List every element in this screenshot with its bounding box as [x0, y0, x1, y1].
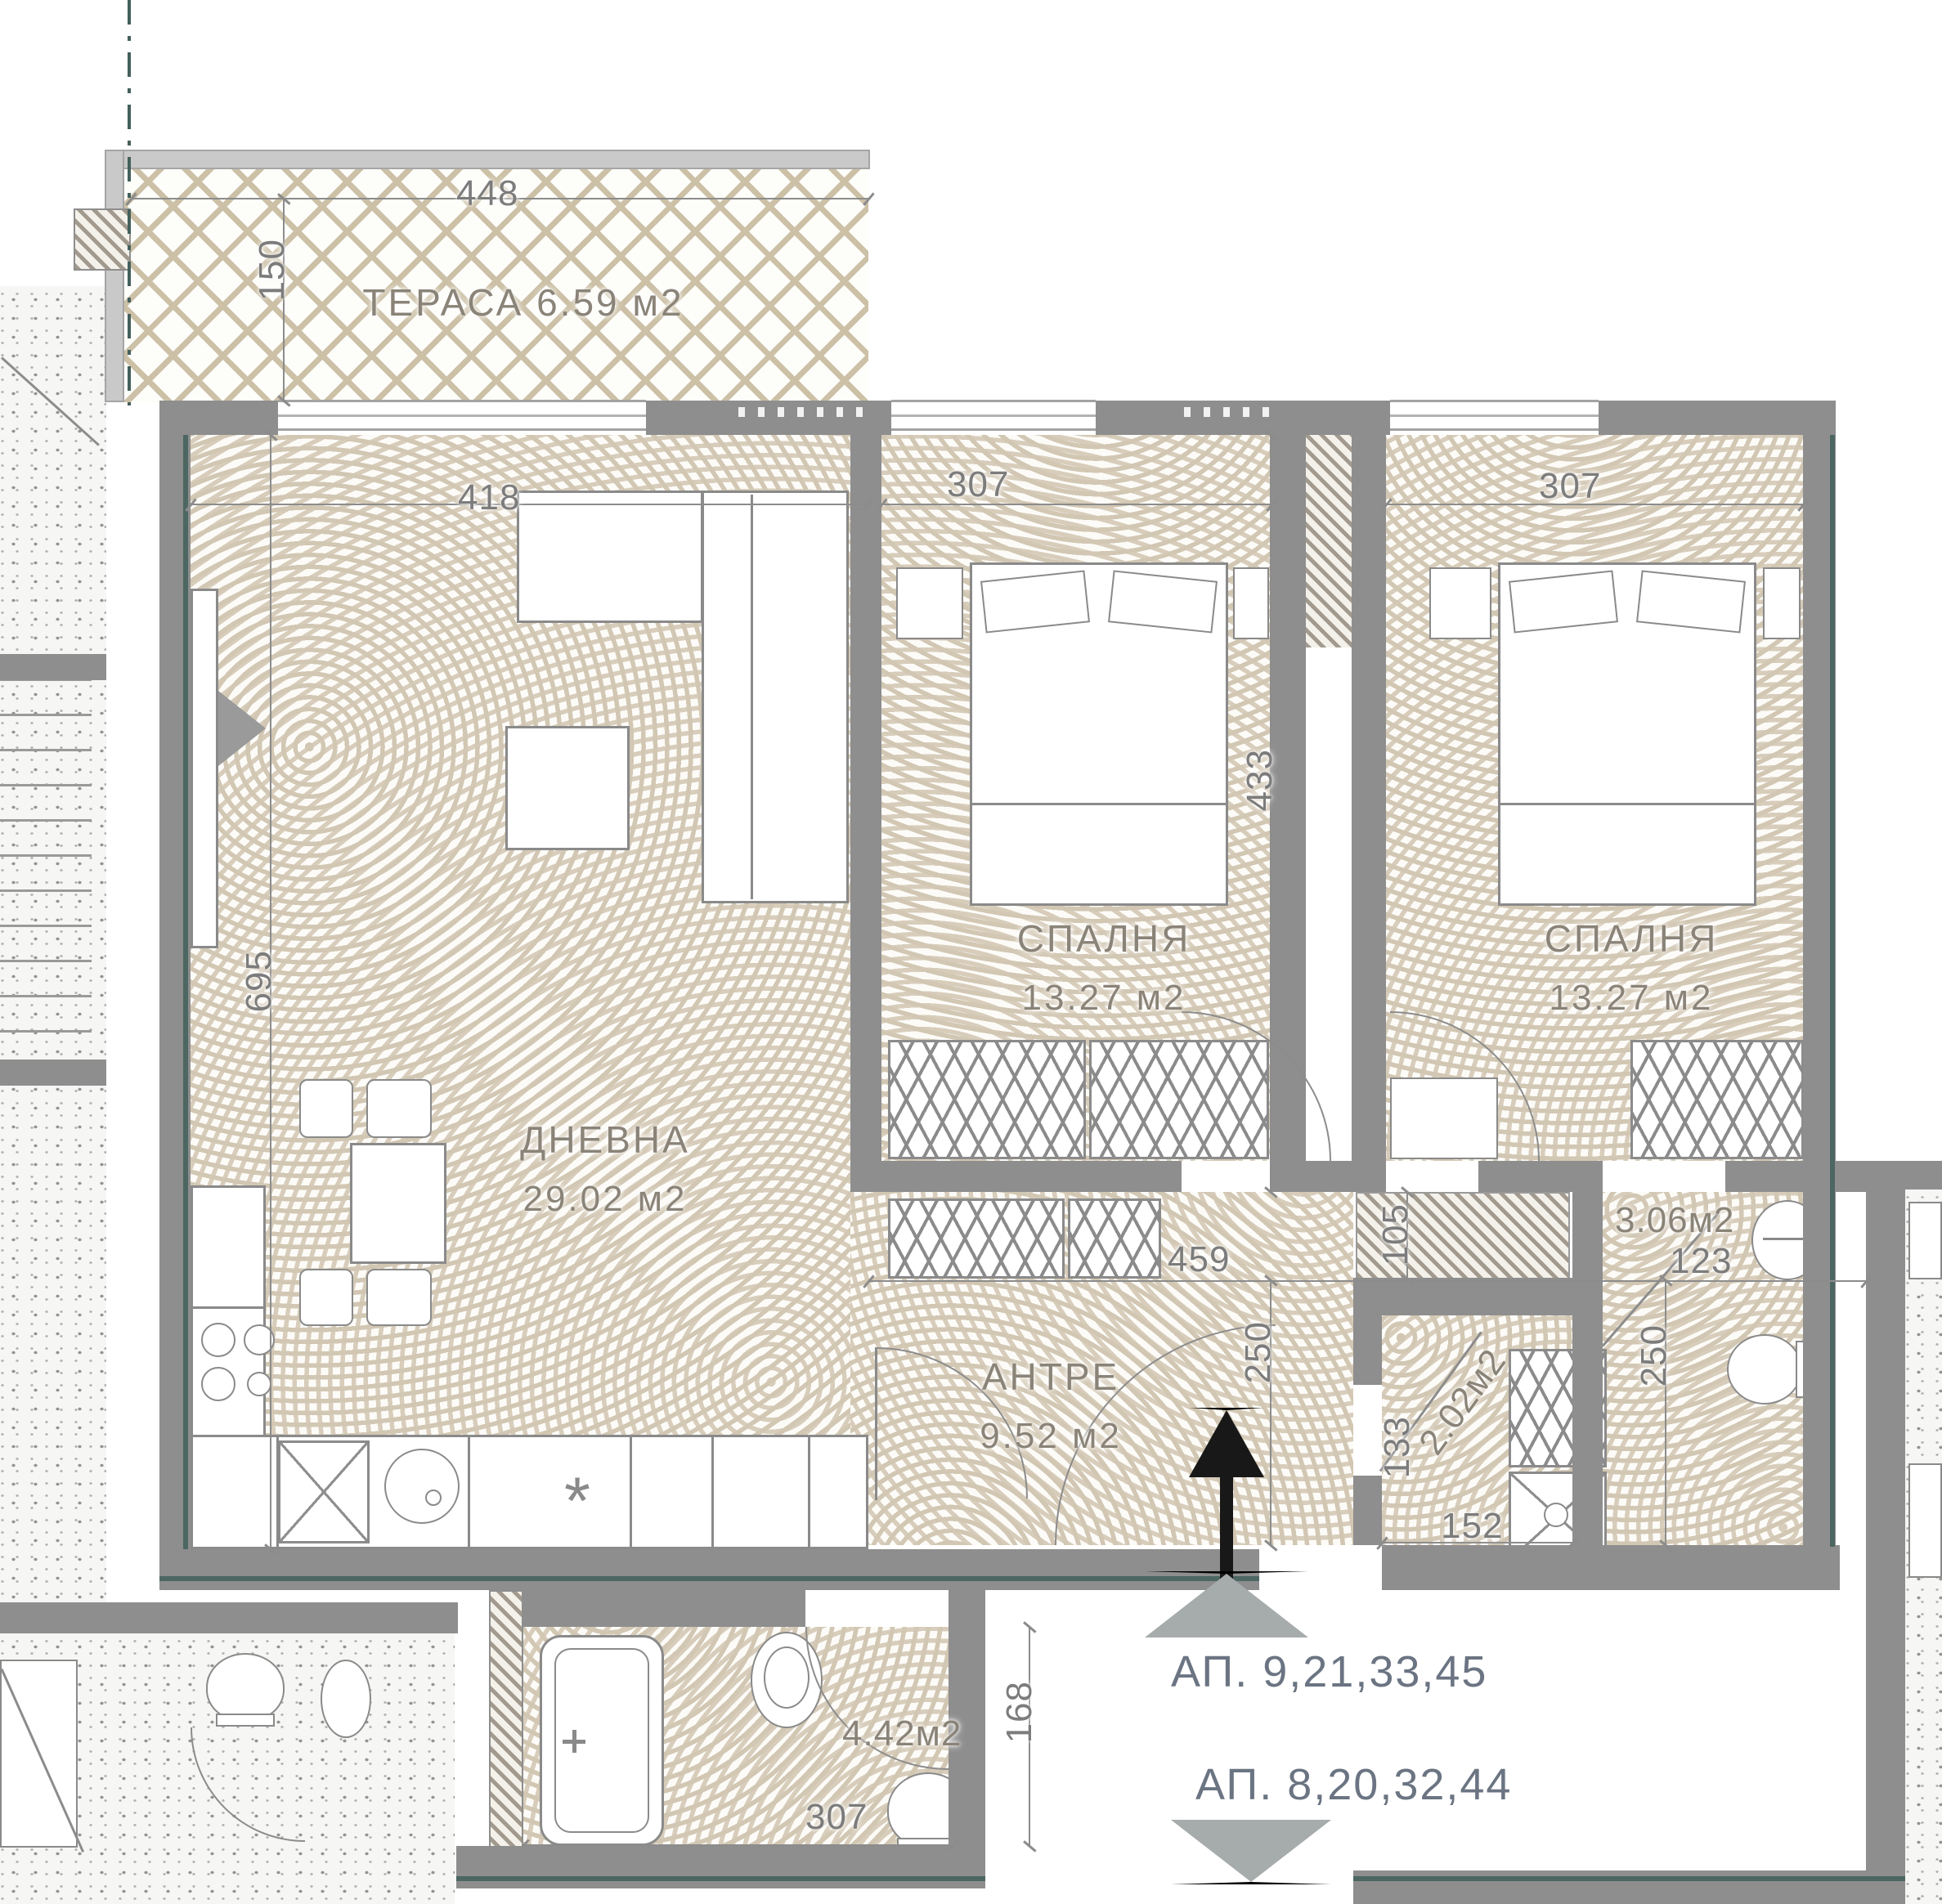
tv-icon	[218, 691, 266, 766]
dim-terrace-depth: 150	[252, 239, 293, 301]
nightstand	[1763, 567, 1801, 639]
kitchen-sink-round	[384, 1449, 460, 1524]
wall-accent-line	[1830, 435, 1835, 1547]
dim-bedroom1-width: 307	[947, 464, 1009, 505]
cooktop-burner	[247, 1372, 271, 1396]
wall	[1572, 1192, 1603, 1545]
dim-living-height: 695	[239, 950, 280, 1012]
room-name: СПАЛНЯ	[1509, 909, 1754, 970]
terrace-label: ТЕРАСА 6.59 м2	[327, 273, 720, 334]
faucet-cross	[572, 1730, 576, 1753]
chair	[366, 1079, 432, 1138]
wall	[0, 654, 106, 680]
wall-accent-line	[456, 1876, 985, 1881]
dim-shaft-height: 433	[1240, 749, 1280, 811]
wall	[159, 1549, 1259, 1590]
wall	[1599, 401, 1836, 435]
wall	[1274, 1161, 1386, 1192]
dim-wc-depth: 250	[1634, 1324, 1675, 1387]
wall	[1382, 1545, 1840, 1590]
counter-divider	[468, 1435, 470, 1549]
dim-hall-width: 459	[1168, 1239, 1230, 1280]
wall-dots	[738, 407, 868, 417]
living-door-leaf	[875, 1347, 877, 1500]
coffee-table	[505, 726, 630, 850]
chair	[299, 1079, 353, 1138]
wall	[523, 1590, 805, 1627]
wc-area-label: 3.06м2	[1615, 1200, 1734, 1241]
dim-line	[191, 504, 868, 505]
wall	[1353, 1476, 1382, 1545]
wc-toilet-bowl	[1727, 1334, 1802, 1404]
counter-divider	[630, 1435, 632, 1549]
wall	[1866, 1189, 1905, 1904]
apartment-down-triangle-icon	[1171, 1820, 1331, 1884]
counter-divider	[808, 1435, 810, 1549]
room-area: 13.27 м2	[1509, 970, 1754, 1027]
kitchen-sink-square	[278, 1440, 370, 1543]
chair	[299, 1269, 353, 1326]
pillow	[980, 570, 1090, 633]
terrace-parapet-left	[105, 150, 124, 402]
wall	[456, 1846, 985, 1888]
dim-living-width: 418	[458, 477, 520, 518]
apartment-label-2: АП. 8,20,32,44	[1195, 1759, 1512, 1810]
counter-divider	[191, 1306, 266, 1309]
pillow	[1636, 570, 1746, 633]
sink-icon	[321, 1660, 371, 1738]
dim-closet-width: 152	[1441, 1506, 1503, 1547]
tv-stand	[191, 589, 218, 948]
wall-accent-line	[1353, 1876, 1905, 1881]
dim-terrace-width: 448	[456, 173, 518, 214]
dim-bath-depth: 168	[999, 1681, 1040, 1743]
room-area: 13.27 м2	[981, 970, 1227, 1027]
apartment-up-triangle-icon	[1145, 1571, 1308, 1637]
nightstand	[1429, 567, 1491, 639]
chair	[366, 1269, 432, 1326]
wall	[1836, 1161, 1942, 1192]
dim-duct-width: 105	[1375, 1203, 1416, 1266]
dining-table	[350, 1143, 446, 1264]
living-label: ДНЕВНА 29.02 м2	[458, 1110, 752, 1228]
adjacent-fixture	[1908, 1463, 1942, 1578]
shower-drain	[1544, 1503, 1568, 1527]
bedroom1-label: СПАЛНЯ 13.27 м2	[981, 909, 1227, 1027]
dishwasher-asterisk: *	[564, 1463, 591, 1540]
dim-bedroom2-width: 307	[1539, 466, 1601, 507]
pier-hatch	[74, 208, 131, 271]
toilet-icon	[206, 1653, 285, 1722]
pillow	[1108, 570, 1218, 633]
dim-bath-width: 307	[805, 1797, 868, 1838]
dim-line	[881, 504, 1271, 505]
wall	[1353, 1315, 1382, 1385]
bedroom2-label: СПАЛНЯ 13.27 м2	[1509, 909, 1754, 1027]
bedroom1-window	[891, 400, 1096, 431]
terrace-sliding-door	[278, 400, 646, 431]
cooktop-burner	[201, 1367, 235, 1401]
wall	[850, 1161, 1182, 1192]
room-area: 9.52 м2	[932, 1408, 1169, 1465]
sofa-horizontal	[517, 491, 703, 623]
bed-blanket-line	[1498, 803, 1756, 805]
wall	[1353, 1278, 1572, 1315]
terrace-label-text: ТЕРАСА 6.59 м2	[327, 273, 720, 334]
bath-side-wall	[489, 1590, 523, 1888]
toilet-tank	[216, 1714, 275, 1727]
sofa-vertical	[702, 491, 849, 903]
nightstand	[1233, 567, 1269, 639]
stairs	[0, 679, 92, 1063]
wall	[1725, 1161, 1836, 1192]
dim-line	[1270, 435, 1271, 1192]
hall-closet	[1068, 1198, 1161, 1279]
wall-accent-line	[159, 1576, 1259, 1581]
dim-line	[1665, 1280, 1666, 1545]
wall	[1478, 1161, 1603, 1192]
dim-closet-height: 133	[1377, 1416, 1418, 1478]
wall	[850, 401, 881, 1192]
room-name: СПАЛНЯ	[981, 909, 1227, 970]
dim-line	[1270, 1280, 1271, 1545]
shaft-hatch	[1306, 435, 1352, 647]
counter-divider	[276, 1435, 279, 1549]
apartment-label-1: АП. 9,21,33,45	[1171, 1646, 1487, 1697]
bath-sink-inner	[764, 1646, 810, 1709]
bed-blanket-line	[970, 803, 1228, 805]
wall	[0, 1602, 458, 1633]
dim-wc-width: 123	[1670, 1241, 1732, 1282]
pillow	[1509, 570, 1618, 633]
adjacent-fixture	[1908, 1202, 1942, 1279]
room-name: ДНЕВНА	[458, 1110, 752, 1171]
room-name: АНТРЕ	[932, 1347, 1169, 1408]
wardrobe	[888, 1040, 1086, 1159]
sink-drain	[425, 1490, 442, 1506]
bath-area-label: 4.42м2	[842, 1714, 962, 1754]
hall-closet	[888, 1198, 1065, 1279]
bedroom2-window	[1390, 400, 1599, 431]
counter-divider	[711, 1435, 714, 1549]
room-area: 29.02 м2	[458, 1171, 752, 1228]
wall-accent-line	[183, 435, 188, 1549]
wardrobe	[1630, 1040, 1804, 1159]
dim-hall-depth: 250	[1238, 1321, 1279, 1383]
cooktop-burner	[201, 1323, 235, 1357]
hall-label: АНТРЕ 9.52 м2	[932, 1347, 1169, 1465]
nightstand	[896, 567, 963, 639]
terrace-parapet-top	[105, 150, 870, 169]
entrance-arrow-head-icon	[1189, 1408, 1264, 1477]
floor-plan-canvas: *	[0, 0, 1942, 1904]
sofa-seam	[751, 495, 753, 899]
dim-line	[523, 1844, 953, 1846]
wall-dots	[1184, 407, 1274, 417]
wall	[0, 1060, 106, 1086]
